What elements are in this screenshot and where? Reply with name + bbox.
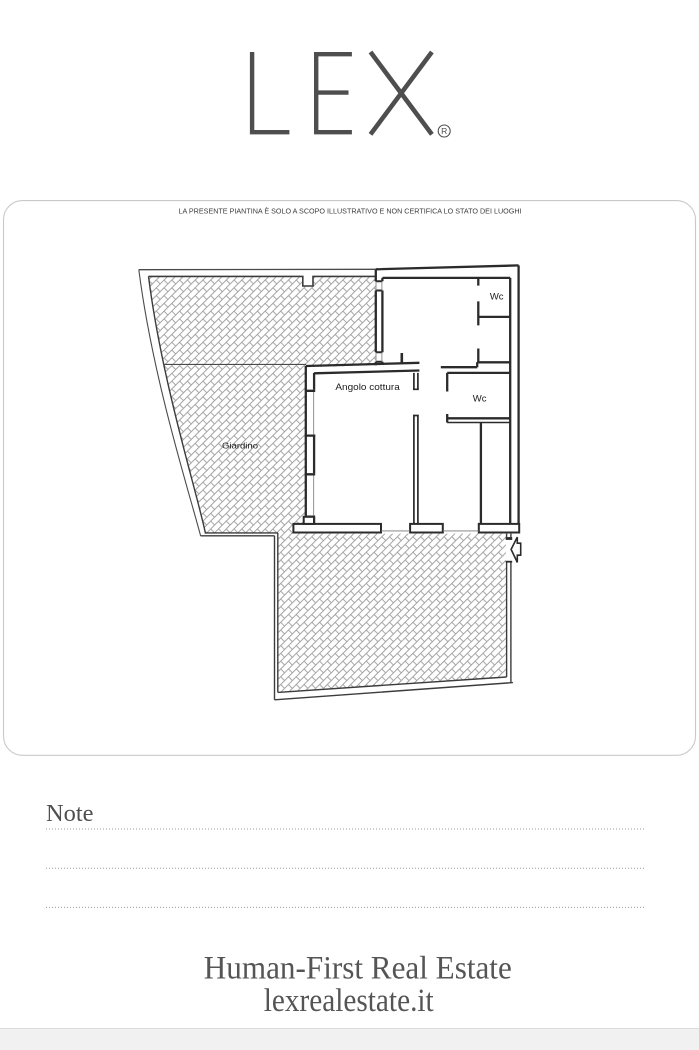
svg-text:Giardino: Giardino — [222, 440, 258, 450]
svg-text:Human-First Real Estate: Human-First Real Estate — [204, 951, 512, 987]
svg-text:Wc: Wc — [473, 393, 487, 404]
svg-text:Note: Note — [46, 800, 94, 827]
svg-text:lexrealestate.it: lexrealestate.it — [264, 983, 434, 1019]
svg-text:Angolo cottura: Angolo cottura — [335, 382, 400, 392]
svg-text:LA PRESENTE PIANTINA È SOLO A: LA PRESENTE PIANTINA È SOLO A SCOPO ILLU… — [179, 206, 522, 215]
svg-text:R: R — [441, 126, 447, 136]
svg-text:Wc: Wc — [490, 291, 504, 302]
